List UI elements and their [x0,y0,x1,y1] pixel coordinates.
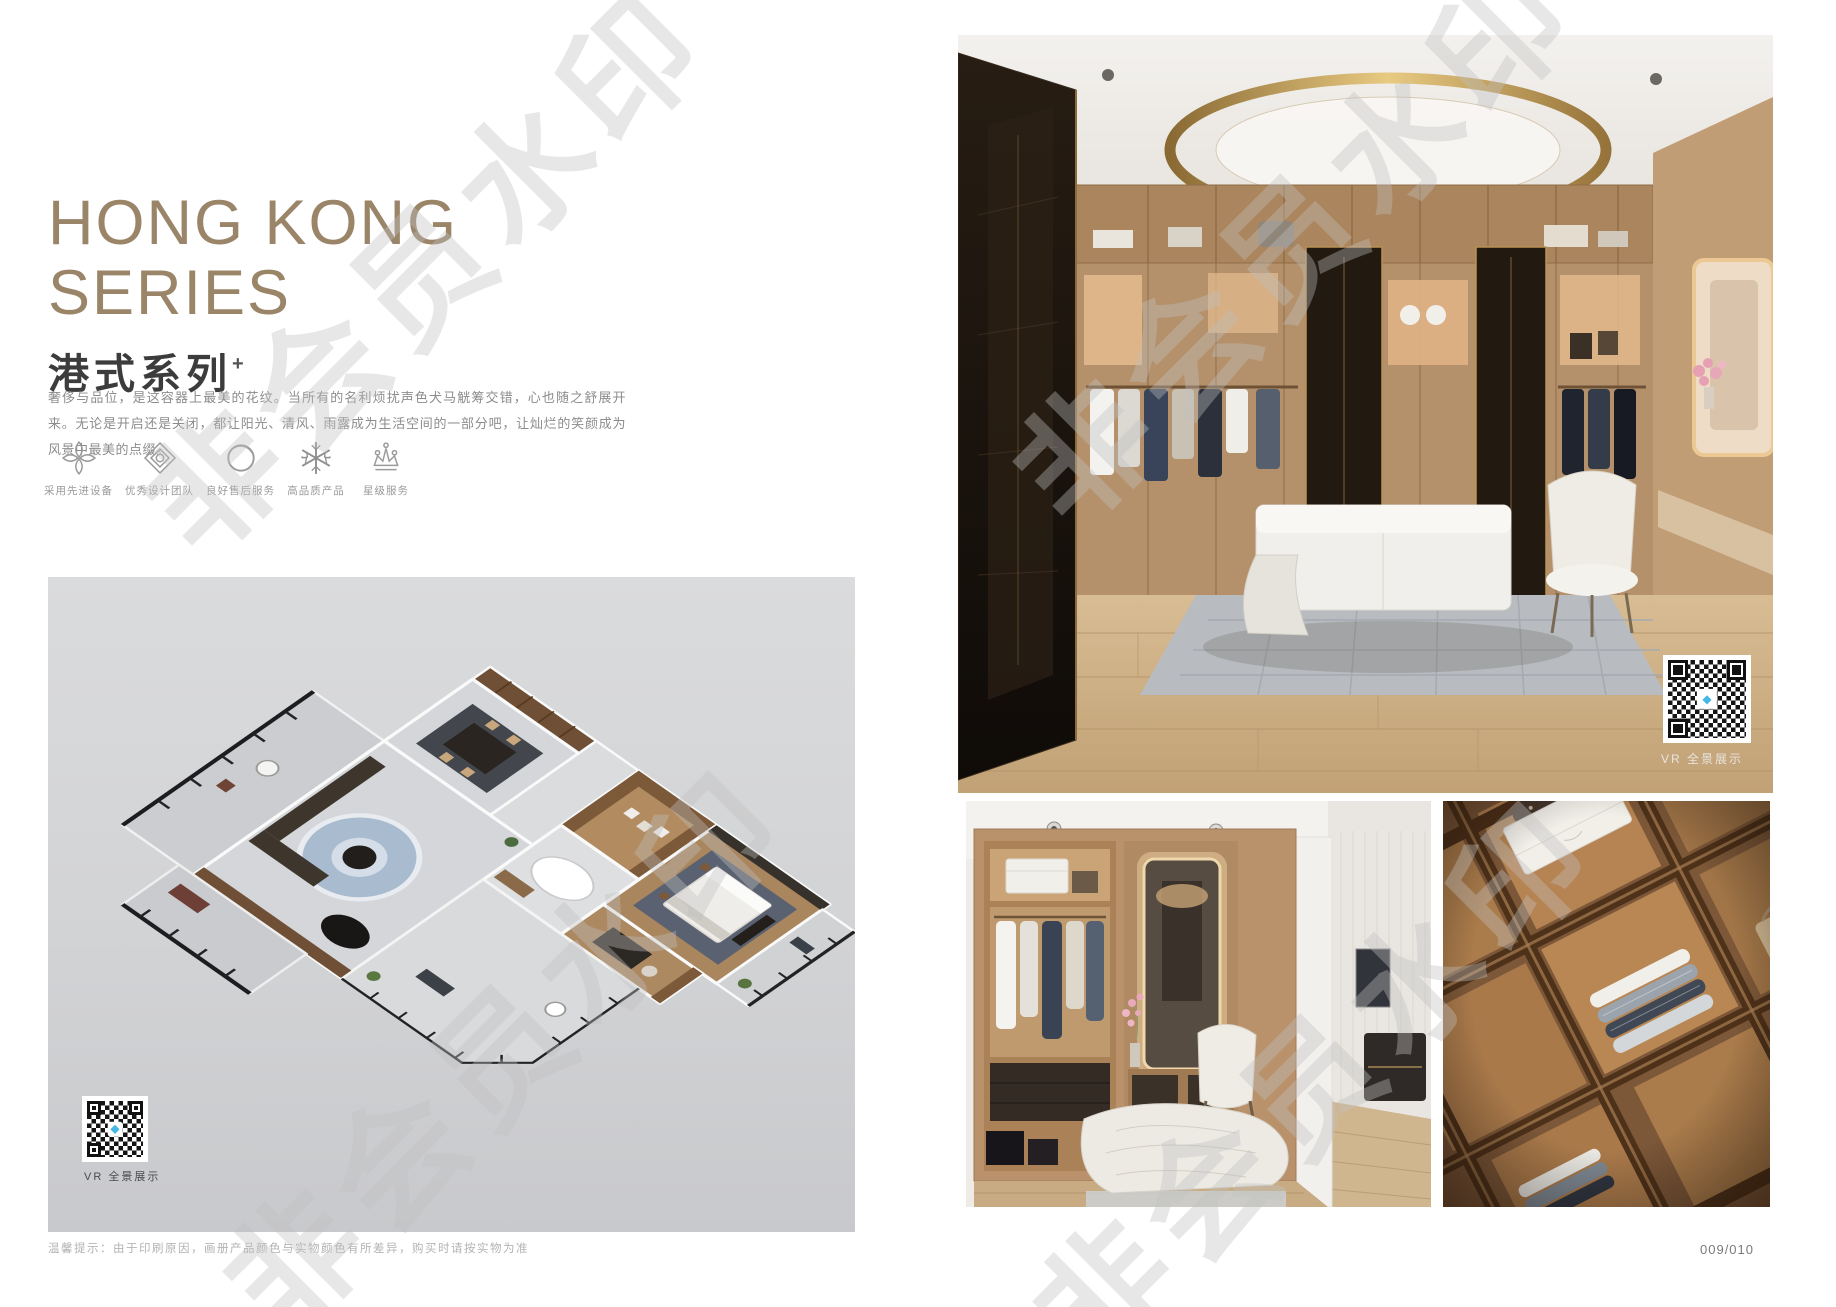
catalog-page: 非会员水印 非会员水印 非会员水印 非会员水印 HONG KONG SERIES… [0,0,1836,1307]
vr-label-right: VR 全景展示 [1661,750,1743,767]
feature-label: 优秀设计团队 [125,483,194,498]
feature-list: 采用先进设备 优秀设计团队 良好售后服务 高品质产品 [44,440,415,498]
qr-logo-icon: ◆ [108,1122,123,1137]
snowflake-icon [298,440,334,476]
feature-item: 良好售后服务 [206,440,275,498]
plus-mark: + [232,353,244,375]
feature-item: 采用先进设备 [44,440,113,498]
ornament-icon [142,440,178,476]
feature-item: 高品质产品 [287,440,345,498]
qr-finder-icon [129,1101,143,1115]
qr-pattern: ◆ [87,1101,143,1157]
qr-finder-icon [87,1143,101,1157]
qr-finder-icon [1668,660,1688,680]
feature-item: 优秀设计团队 [125,440,194,498]
feature-label: 采用先进设备 [44,483,113,498]
pinwheel-icon [61,440,97,476]
ring-icon [223,440,259,476]
floor-plan-illustration [48,577,855,1232]
footer-note: 温馨提示：由于印刷原因，画册产品颜色与实物颜色有所差异，购买时请按实物为准 [48,1240,529,1256]
walk-in-closet-photo: ◆ VR 全景展示 [958,35,1773,793]
page-number: 009/010 [1700,1242,1754,1257]
qr-finder-icon [1668,719,1688,739]
vr-label-left: VR 全景展示 [84,1168,160,1184]
vr-qr-code-left: ◆ [82,1096,148,1162]
feature-label: 良好售后服务 [206,483,275,498]
feature-label: 星级服务 [363,483,409,498]
floor-plan-panel [48,577,855,1232]
qr-pattern: ◆ [1668,660,1746,738]
shelf-closeup-photo [1443,801,1770,1207]
qr-logo-icon: ◆ [1697,689,1717,709]
crown-icon [368,440,404,476]
qr-finder-icon [1727,660,1747,680]
dressing-table-photo [966,801,1431,1207]
qr-finder-icon [87,1101,101,1115]
title-line-2: SERIES [48,258,458,328]
vr-qr-code-right: ◆ [1663,655,1751,743]
feature-item: 星级服务 [357,440,415,498]
title-line-1: HONG KONG [48,188,458,258]
series-title-english: HONG KONG SERIES [48,188,458,328]
feature-label: 高品质产品 [287,483,345,498]
